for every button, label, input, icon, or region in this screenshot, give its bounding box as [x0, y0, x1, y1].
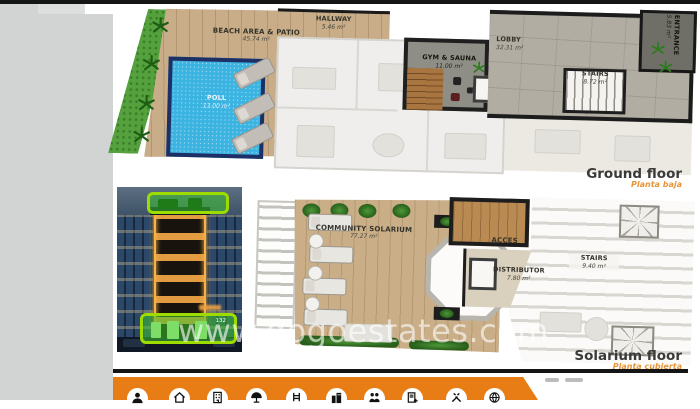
room-name: ENTRANCE: [671, 15, 680, 75]
watermark: www.gogoestates.com: [178, 312, 578, 350]
sauna-benches: [406, 68, 443, 111]
house-icon[interactable]: [169, 388, 190, 409]
ground-floor-subtitle: Planta baja: [540, 180, 682, 189]
beach-icon[interactable]: [246, 388, 267, 409]
shop-sign: [199, 305, 221, 310]
pool-ladder-icon[interactable]: [286, 388, 307, 409]
apartment-icon[interactable]: [207, 388, 228, 409]
left-gray-panel: [0, 4, 113, 400]
spiral-stairs: [619, 205, 660, 239]
tools-icon[interactable]: [446, 388, 467, 409]
room-area: 8.72 m²: [565, 78, 625, 87]
room-label-stairs-ground: STAIRS 8.72 m²: [565, 70, 625, 87]
palm-icon: [137, 95, 155, 113]
bottom-black-line: [113, 369, 688, 373]
highlight-solarium-level: [147, 192, 229, 214]
sun-lounger: [302, 277, 346, 295]
partial-logo-mark: [545, 378, 559, 382]
panel-notch: [85, 4, 113, 14]
room-label-gym: GYM & SAUNA 11.00 m²: [406, 54, 491, 71]
room-label-lobby: LOBBY 32.31 m²: [496, 36, 566, 53]
panel-tab: [38, 4, 85, 14]
room-label-pool: POLL 13.00 m²: [171, 94, 261, 111]
partial-logo-mark: [565, 378, 583, 382]
person-icon[interactable]: [127, 388, 148, 409]
room-name: ACCES: [480, 236, 530, 246]
city-icon[interactable]: [326, 388, 347, 409]
palm-icon: [142, 55, 160, 73]
globe-icon[interactable]: [484, 388, 505, 409]
gym-equipment: [451, 93, 460, 101]
room-label-distributor: DISTRIBUTOR 7.80 m²: [489, 266, 549, 283]
room-label-community-solarium: COMMUNITY SOLARIUM 77.27 m²: [314, 224, 414, 242]
family-icon[interactable]: [364, 388, 385, 409]
room-label-entrance: ENTRANCE 5.83 m²: [662, 14, 680, 74]
room-label-stairs-solarium: STAIRS 9.40 m²: [569, 254, 619, 270]
pergola-slats: [254, 200, 297, 329]
palm-icon: [132, 127, 150, 145]
document-icon[interactable]: [402, 388, 423, 409]
gym-equipment: [453, 77, 461, 85]
ground-floor-plan: POLL 13.00 m² BEACH AREA & PATIO 45.74 m…: [108, 6, 695, 173]
palm-icon: [151, 17, 169, 35]
room-label-acces: ACCES: [480, 236, 530, 246]
room-label-hallway: HALLWAY 5.46 m²: [277, 14, 389, 32]
room-area: 9.40 m²: [569, 262, 619, 270]
